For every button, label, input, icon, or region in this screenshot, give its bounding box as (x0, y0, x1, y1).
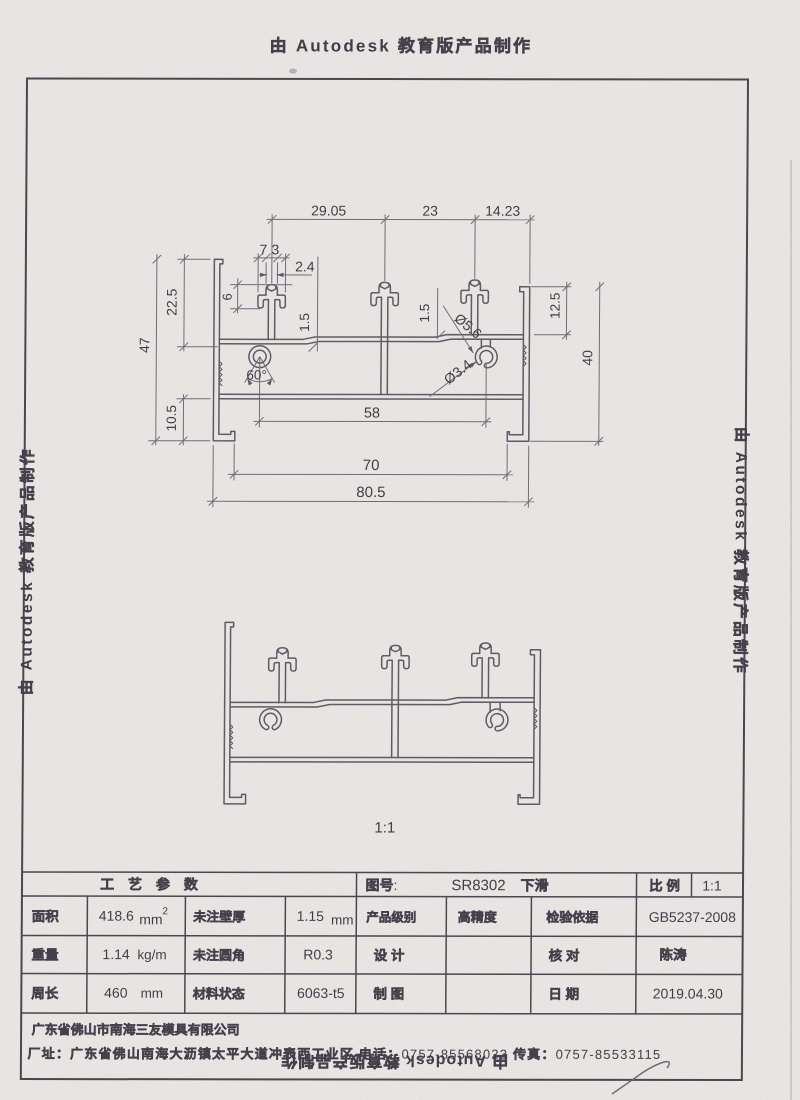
svg-text:由 Autodesk 教育版产品制作: 由 Autodesk 教育版产品制作 (731, 427, 752, 675)
svg-text:460: 460 (104, 985, 128, 1001)
svg-text:58: 58 (364, 406, 380, 422)
svg-text:检验依据: 检验依据 (546, 910, 598, 925)
svg-text:广东省佛山市南海三友模具有限公司: 广东省佛山市南海三友模具有限公司 (32, 1022, 240, 1037)
svg-text:2019.04.30: 2019.04.30 (653, 985, 723, 1001)
svg-text:核 对: 核 对 (549, 947, 580, 963)
svg-text:7: 7 (260, 241, 268, 257)
svg-text:22.5: 22.5 (164, 288, 180, 315)
svg-text:1.14: 1.14 (102, 946, 130, 962)
svg-text:14.23: 14.23 (485, 203, 520, 219)
svg-text:mm: mm (331, 912, 354, 927)
svg-text:1:1: 1:1 (702, 877, 722, 893)
svg-text:图号:: 图号: (365, 877, 397, 893)
svg-text:GB5237-2008: GB5237-2008 (649, 909, 736, 925)
svg-text:制 图: 制 图 (373, 986, 404, 1002)
svg-text:6: 6 (220, 293, 235, 300)
svg-text:47: 47 (136, 337, 152, 353)
svg-text:1.5: 1.5 (297, 313, 312, 332)
svg-text:mm: mm (141, 986, 164, 1001)
svg-text:40: 40 (579, 350, 595, 366)
svg-text:陈涛: 陈涛 (660, 946, 688, 962)
svg-text:日 期: 日 期 (548, 987, 579, 1002)
svg-text:SR8302: SR8302 (451, 877, 505, 894)
svg-text:1.5: 1.5 (417, 304, 432, 323)
svg-text:2.4: 2.4 (295, 258, 315, 274)
svg-text:mm: mm (139, 911, 162, 927)
svg-text:产品级别: 产品级别 (366, 910, 416, 925)
svg-text:比 例: 比 例 (649, 877, 680, 893)
svg-text:10.5: 10.5 (164, 405, 179, 431)
svg-text:kg/m: kg/m (137, 947, 166, 962)
svg-text:下滑: 下滑 (520, 877, 548, 893)
svg-text:由 Autodesk 教育版产品制作: 由 Autodesk 教育版产品制作 (270, 35, 533, 55)
svg-text:材料状态: 材料状态 (193, 986, 245, 1001)
svg-text:周长: 周长 (31, 985, 59, 1001)
svg-text:1:1: 1:1 (374, 820, 395, 837)
svg-text:60°: 60° (246, 368, 267, 383)
svg-text:418.6: 418.6 (99, 908, 134, 924)
svg-text:3: 3 (272, 241, 280, 257)
svg-text:由 Autodesk 教育版产品制作: 由 Autodesk 教育版产品制作 (16, 447, 37, 695)
svg-text:高精度: 高精度 (458, 910, 498, 925)
svg-text:29.05: 29.05 (311, 202, 346, 218)
svg-text:2: 2 (162, 906, 168, 917)
svg-text:面积: 面积 (32, 908, 60, 924)
svg-text:12.5: 12.5 (548, 293, 563, 319)
svg-text:工 艺 参 数: 工 艺 参 数 (100, 876, 203, 892)
svg-text:80.5: 80.5 (356, 484, 385, 501)
svg-text:重量: 重量 (32, 947, 60, 963)
svg-text:未注壁厚: 未注壁厚 (192, 909, 245, 924)
svg-text:设 计: 设 计 (374, 947, 405, 963)
svg-text:6063-t5: 6063-t5 (297, 985, 345, 1001)
svg-text:70: 70 (363, 457, 380, 474)
svg-text:23: 23 (422, 203, 438, 219)
svg-text:未注圆角: 未注圆角 (192, 948, 245, 963)
svg-text:R0.3: R0.3 (303, 946, 333, 962)
svg-text:1.15: 1.15 (297, 908, 325, 924)
svg-text:厂址：广东省佛山南海大沥镇太平大道冲表西工业区 电话：075: 厂址：广东省佛山南海大沥镇太平大道冲表西工业区 电话：0757-85568023… (27, 1046, 661, 1062)
